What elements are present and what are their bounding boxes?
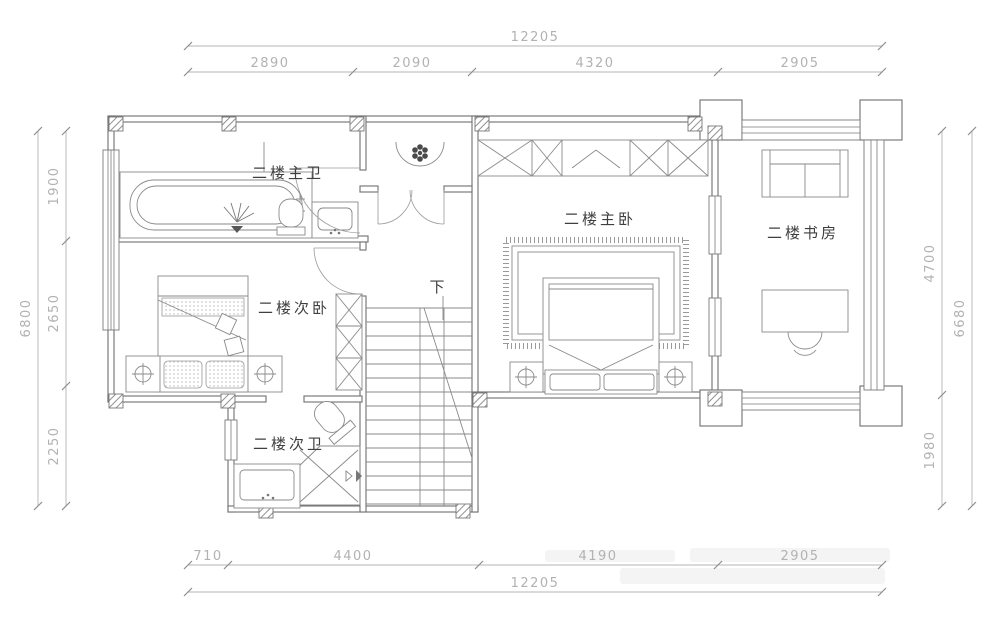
dim-right-total: 6680 <box>953 298 968 337</box>
sink-icon <box>234 464 300 508</box>
dimension-right-total: 6680 <box>953 127 976 510</box>
dimension-top-total: 12205 <box>184 30 886 50</box>
hallway <box>378 142 444 224</box>
room-second-bath: 二楼次卫 <box>234 396 362 508</box>
dim-right-2: 1980 <box>923 430 938 469</box>
plant-icon <box>412 144 428 162</box>
nightstand-icon <box>659 362 692 392</box>
dim-top-2: 2090 <box>392 56 431 71</box>
plant-niche <box>396 142 444 166</box>
door-arc-second-bedroom <box>314 248 360 294</box>
bed-second-icon <box>158 276 248 392</box>
dimension-left-segments: 1900 2650 2250 <box>47 127 70 510</box>
dimension-top-segments: 2890 2090 4320 2905 <box>184 56 886 76</box>
double-door-arcs <box>378 190 444 224</box>
desk-icon <box>762 290 848 355</box>
dimension-left-total: 6800 <box>19 127 42 510</box>
dim-top-3: 4320 <box>575 56 614 71</box>
wardrobe-icon <box>336 294 362 390</box>
dim-bottom-total: 12205 <box>511 576 560 591</box>
nightstand-icon <box>510 362 543 392</box>
floorplan-canvas: 二楼主卫 <box>0 0 1000 642</box>
stair-down-label: 下 <box>429 278 444 296</box>
dim-left-1: 1900 <box>47 166 62 205</box>
nightstand-icon <box>126 356 160 392</box>
wardrobe-icon <box>478 140 708 176</box>
nightstand-icon <box>248 356 282 392</box>
dim-bottom-1: 710 <box>193 549 222 564</box>
room-label-master-bedroom: 二楼主卧 <box>564 210 636 228</box>
dim-top-total: 12205 <box>511 30 560 45</box>
room-label-second-bedroom: 二楼次卧 <box>258 299 330 317</box>
dim-left-2: 2650 <box>47 293 62 332</box>
room-master-bath: 二楼主卫 <box>120 164 360 238</box>
dimension-bottom-segments: 710 4400 4190 2905 <box>184 549 886 569</box>
toilet-icon <box>277 199 305 235</box>
room-label-master-bath: 二楼主卫 <box>252 164 324 182</box>
dim-right-1: 4700 <box>923 243 938 282</box>
room-second-bedroom: 二楼次卧 <box>126 248 362 392</box>
dim-bottom-4: 2905 <box>780 549 819 564</box>
floor-plan-drawing: 二楼主卫 <box>0 0 1000 642</box>
dim-bottom-2: 4400 <box>333 549 372 564</box>
shower-icon <box>297 446 362 505</box>
cabinet-icon <box>762 150 848 197</box>
dim-top-1: 2890 <box>250 56 289 71</box>
dim-bottom-3: 4190 <box>578 549 617 564</box>
dim-left-total: 6800 <box>19 298 34 337</box>
dimension-right-segments: 4700 1980 <box>923 127 946 510</box>
bed-master-icon <box>543 278 659 394</box>
room-label-study: 二楼书房 <box>767 224 839 242</box>
dim-left-3: 2250 <box>47 426 62 465</box>
room-label-second-bath: 二楼次卫 <box>253 435 325 453</box>
dim-top-4: 2905 <box>780 56 819 71</box>
room-master-bedroom: 二楼主卧 <box>478 140 708 394</box>
room-study: 二楼书房 <box>762 150 848 355</box>
stairs: 下 <box>366 278 472 506</box>
